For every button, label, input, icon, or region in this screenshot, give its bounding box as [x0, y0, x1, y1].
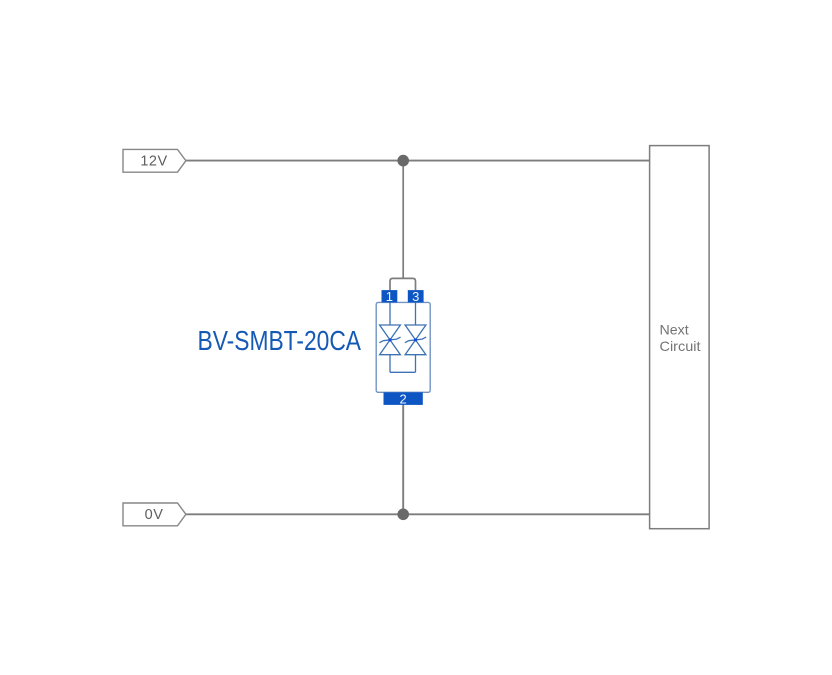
svg-text:2: 2	[399, 392, 406, 407]
svg-text:Next: Next	[660, 322, 689, 338]
svg-text:1: 1	[386, 289, 393, 304]
svg-text:3: 3	[412, 289, 419, 304]
svg-text:BV-SMBT-20CA: BV-SMBT-20CA	[198, 325, 362, 356]
svg-text:12V: 12V	[140, 154, 167, 170]
svg-text:Circuit: Circuit	[660, 338, 701, 354]
svg-text:0V: 0V	[145, 507, 164, 523]
